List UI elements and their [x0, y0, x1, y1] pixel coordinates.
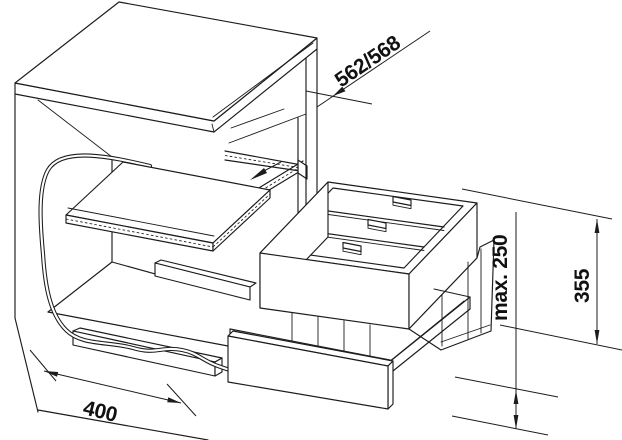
dimension-cabinet-depth: 562/568 — [306, 31, 430, 107]
front-panel — [228, 331, 393, 409]
technical-drawing: 562/568 355 max. 250 400 — [0, 0, 622, 440]
waste-bin-unit — [228, 182, 494, 409]
countertop — [15, 2, 317, 132]
dimension-system-height-label: 355 — [571, 268, 594, 303]
dimension-depth-label: 562/568 — [331, 31, 405, 92]
pull-out-board — [66, 162, 270, 251]
waste-bin-installation-diagram: 562/568 355 max. 250 400 — [0, 0, 622, 440]
floor-rail-rear — [155, 260, 256, 300]
dimension-front-height-label: max. 250 — [489, 235, 512, 321]
dimension-width-label: 400 — [81, 396, 120, 426]
